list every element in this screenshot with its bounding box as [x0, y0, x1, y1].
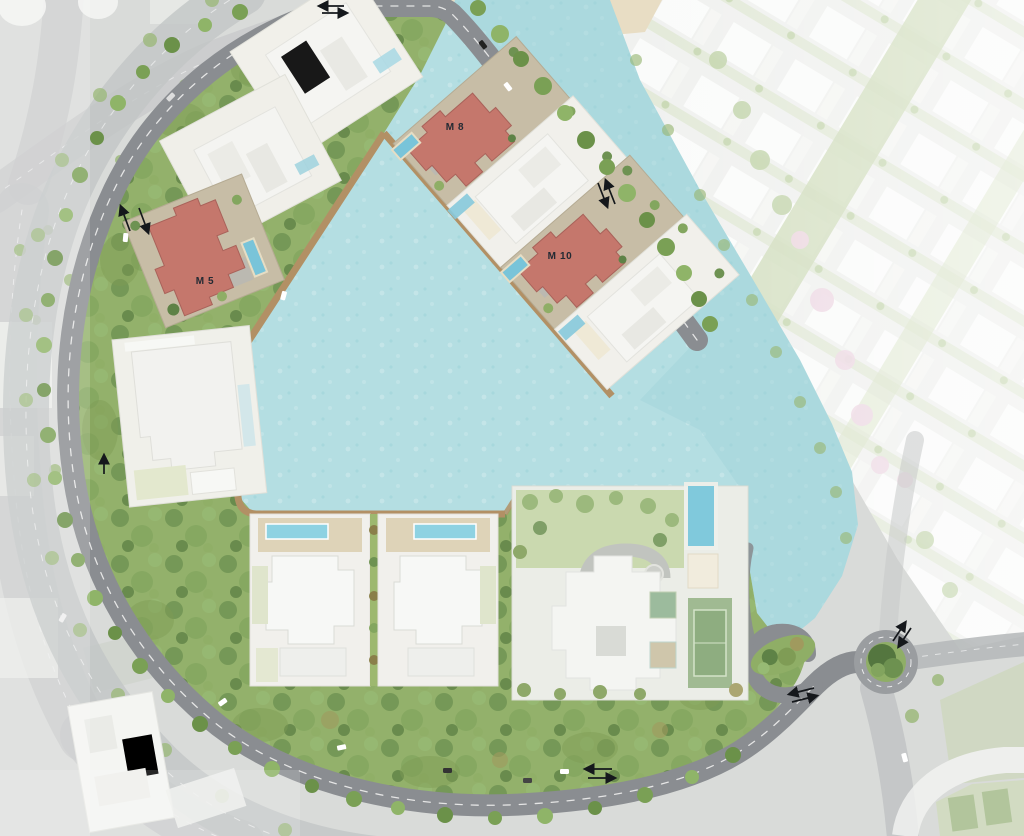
villa-plot-south-2 [378, 514, 498, 686]
fade-overlay-bottomleft [0, 770, 300, 836]
site-plan-canvas: M 5 M 8 M 10 [0, 0, 1024, 836]
villa-label-m8-text: M 8 [446, 122, 464, 133]
roundabout [854, 630, 918, 694]
villa-plot-west-large [112, 326, 267, 508]
villa-label-m5: M 5 [196, 276, 214, 287]
villa-label-m10: M 10 [548, 251, 573, 262]
villa-label-m10-text: M 10 [548, 251, 573, 262]
villa-label-m8: M 8 [446, 122, 464, 133]
south-villa-plots [250, 514, 498, 686]
fade-overlay-left [0, 0, 90, 836]
clubhouse-complex [512, 482, 748, 700]
master-plan-map: M 5 M 8 M 10 [0, 0, 1024, 836]
villa-plot-south-1 [250, 514, 370, 686]
villa-label-m5-text: M 5 [196, 276, 214, 287]
